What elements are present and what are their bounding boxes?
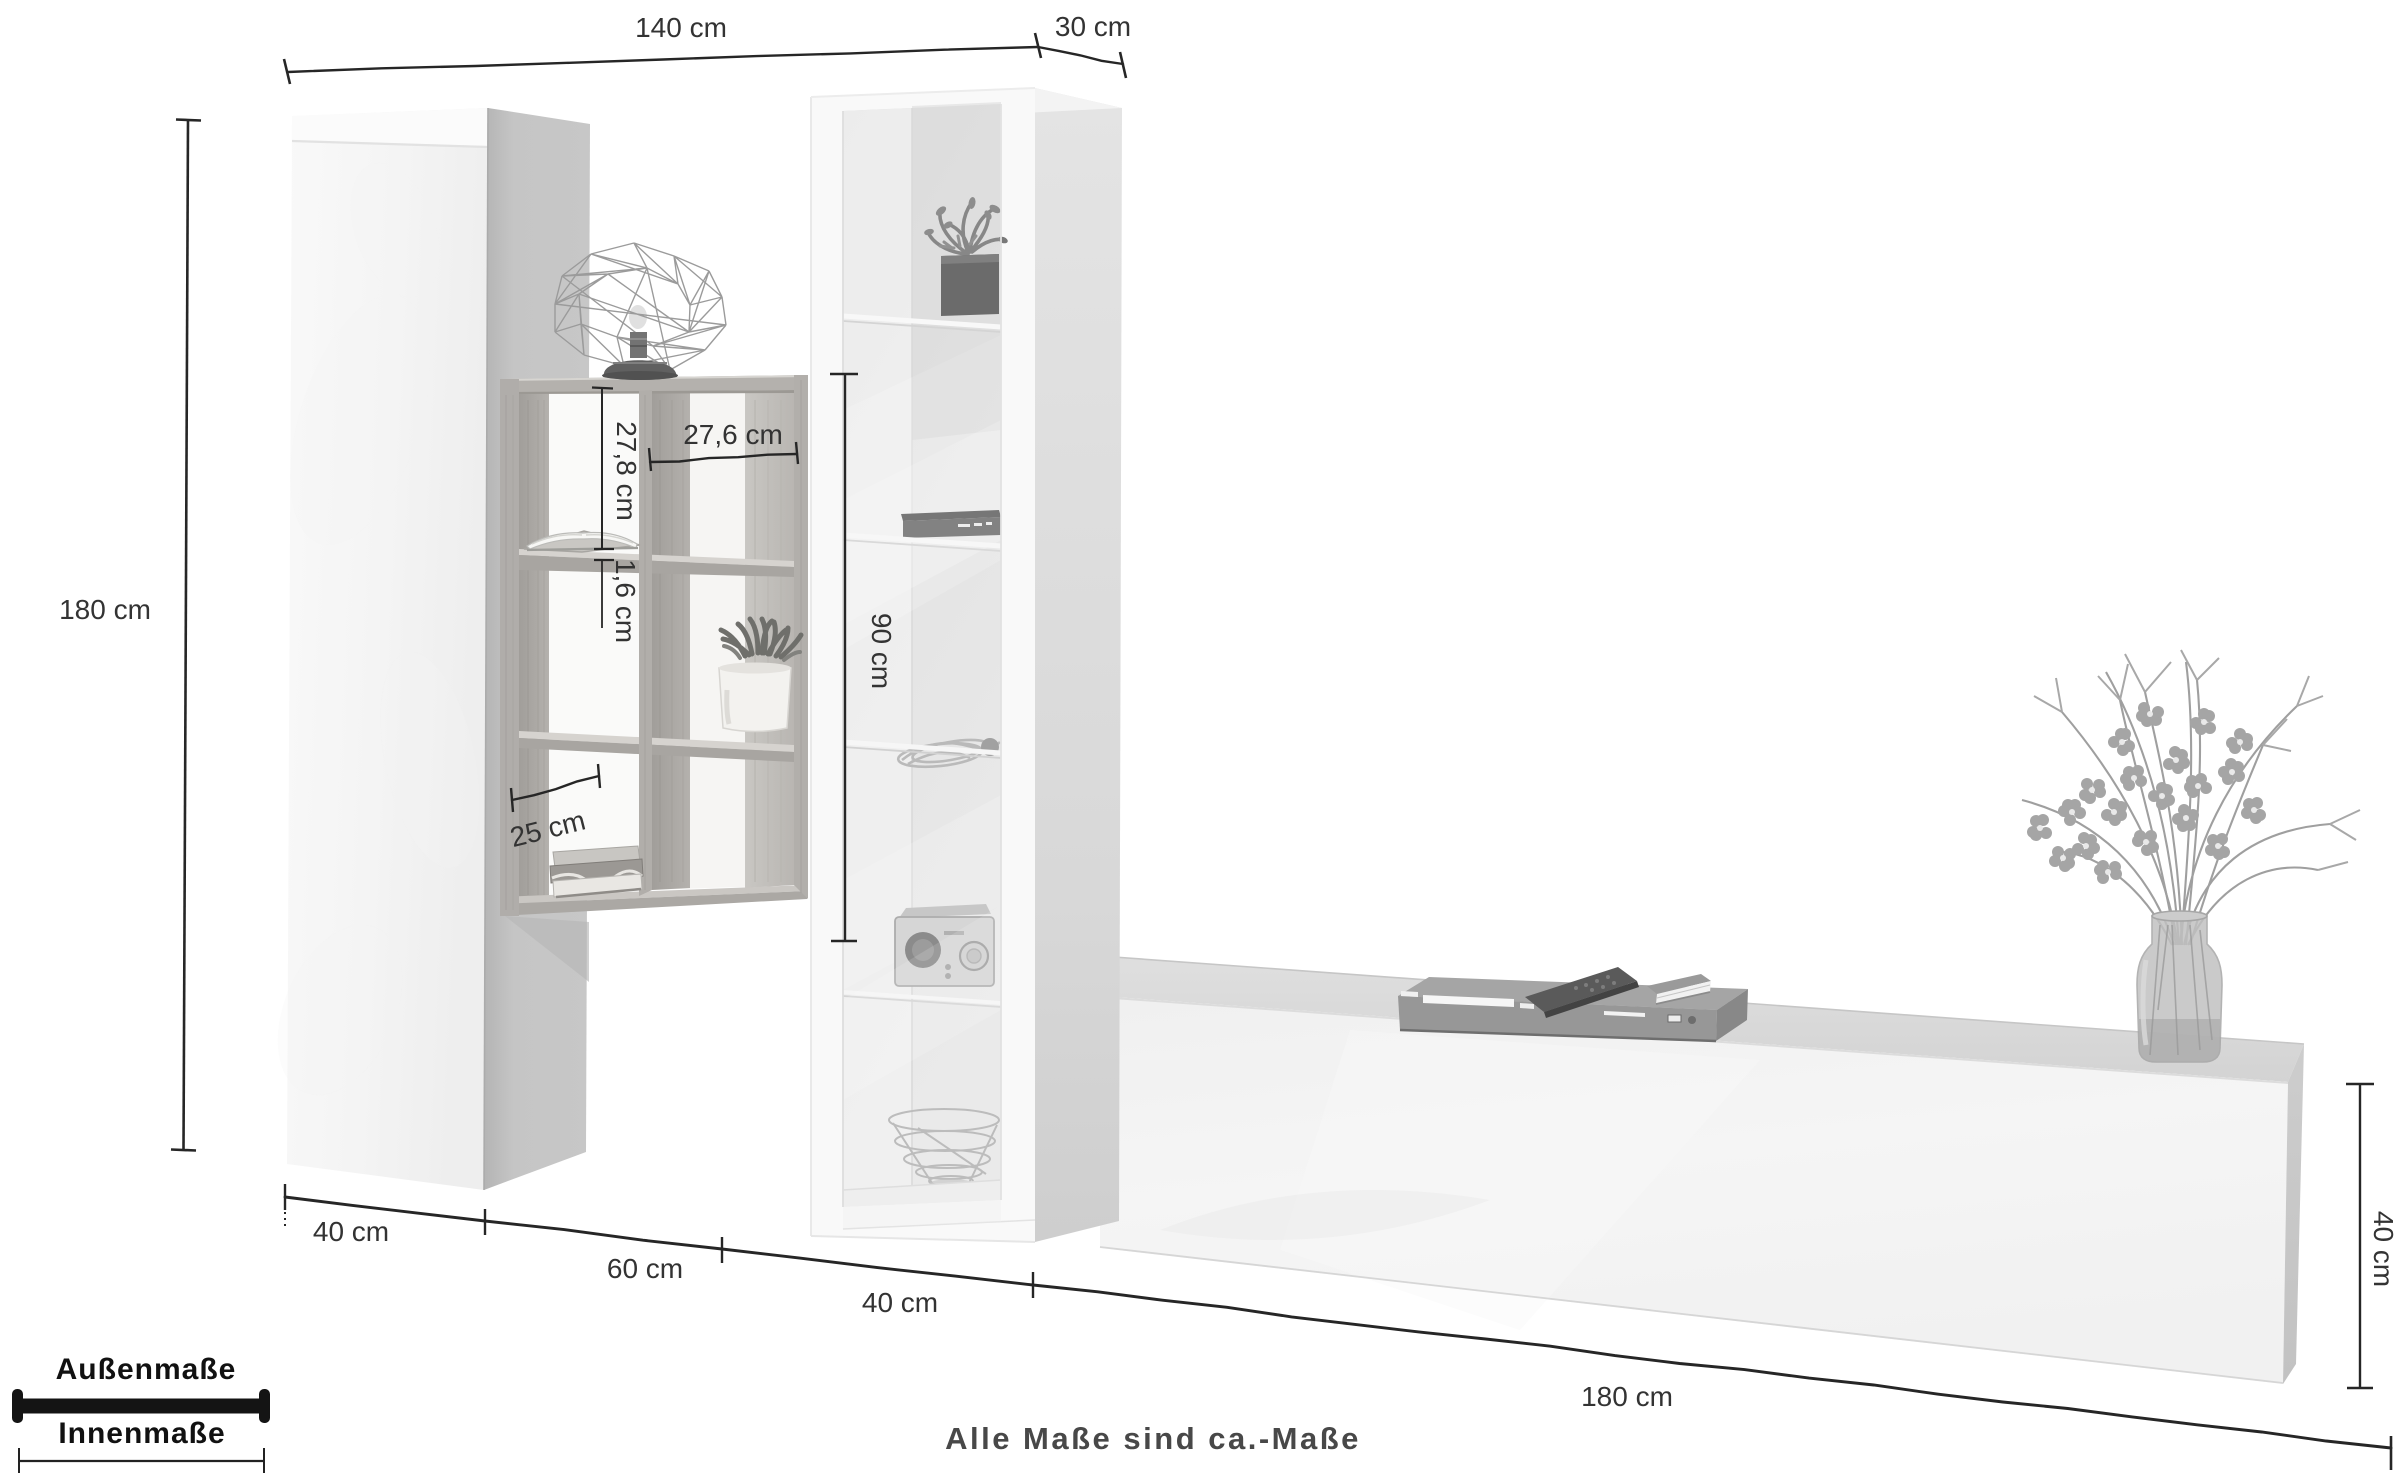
svg-text:Alle Maße sind ca.-Maße: Alle Maße sind ca.-Maße (945, 1421, 1361, 1456)
svg-text:40 cm: 40 cm (862, 1287, 938, 1318)
svg-text:140 cm: 140 cm (635, 12, 727, 43)
svg-text:27,8 cm: 27,8 cm (611, 421, 642, 521)
svg-text:Außenmaße: Außenmaße (56, 1353, 237, 1386)
svg-text:Innenmaße: Innenmaße (58, 1417, 225, 1450)
svg-text:40 cm: 40 cm (2368, 1211, 2399, 1287)
svg-text:1,6 cm: 1,6 cm (610, 559, 641, 643)
svg-text:27,6 cm: 27,6 cm (683, 419, 783, 450)
svg-text:90 cm: 90 cm (866, 613, 897, 689)
svg-text:180 cm: 180 cm (1581, 1381, 1673, 1412)
svg-text:40 cm: 40 cm (313, 1216, 389, 1247)
svg-text:30 cm: 30 cm (1055, 11, 1131, 42)
svg-text:180 cm: 180 cm (59, 594, 151, 625)
svg-text:60 cm: 60 cm (607, 1253, 683, 1284)
